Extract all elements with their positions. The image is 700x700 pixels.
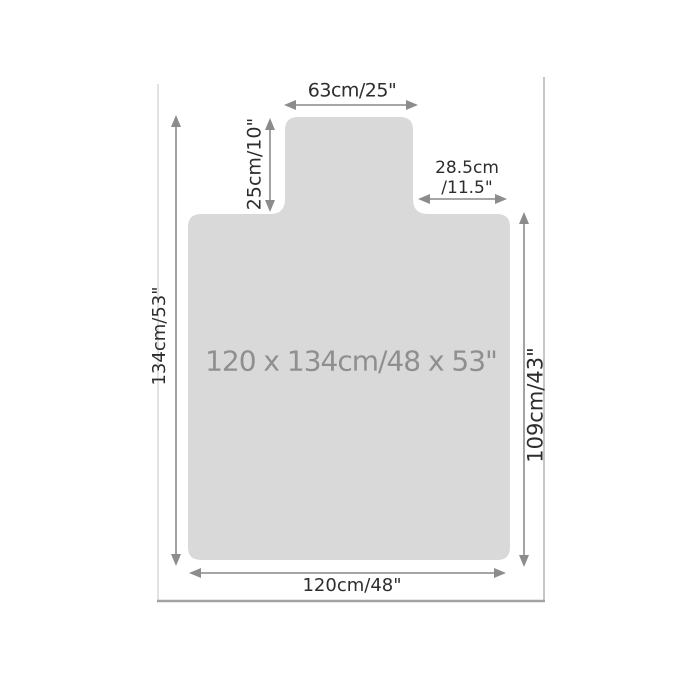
lip-depth-arrow xyxy=(265,118,275,212)
arrowhead-bottom xyxy=(519,555,529,567)
right-notch-dimension-line2: /11.5" xyxy=(435,178,499,198)
body-height-dimension-label: 109cm/43" xyxy=(524,347,547,463)
mat-size-center-label: 120 x 134cm/48 x 53" xyxy=(205,345,497,378)
overall-height-arrow xyxy=(171,115,181,566)
right-notch-dimension-label: 28.5cm /11.5" xyxy=(435,158,499,198)
arrowhead-bottom xyxy=(265,200,275,212)
arrowhead-top xyxy=(519,212,529,224)
arrowhead-left xyxy=(284,100,296,110)
overall-width-dimension-label: 120cm/48" xyxy=(302,576,401,596)
arrowhead-left xyxy=(189,568,201,578)
arrowhead-top xyxy=(265,118,275,130)
overall-height-dimension-label: 134cm/53" xyxy=(150,286,170,385)
chair-mat-dimension-diagram: 63cm/25" 25cm/10" 28.5cm /11.5" 134cm/53… xyxy=(0,0,700,700)
arrowhead-right xyxy=(406,100,418,110)
lip-depth-dimension-label: 25cm/10" xyxy=(245,118,266,210)
arrowhead-top xyxy=(171,115,181,127)
lip-width-dimension-label: 63cm/25" xyxy=(308,81,396,102)
arrowhead-right xyxy=(494,568,506,578)
right-notch-dimension-line1: 28.5cm xyxy=(435,158,499,178)
arrowhead-left xyxy=(418,194,430,204)
arrowhead-bottom xyxy=(171,554,181,566)
